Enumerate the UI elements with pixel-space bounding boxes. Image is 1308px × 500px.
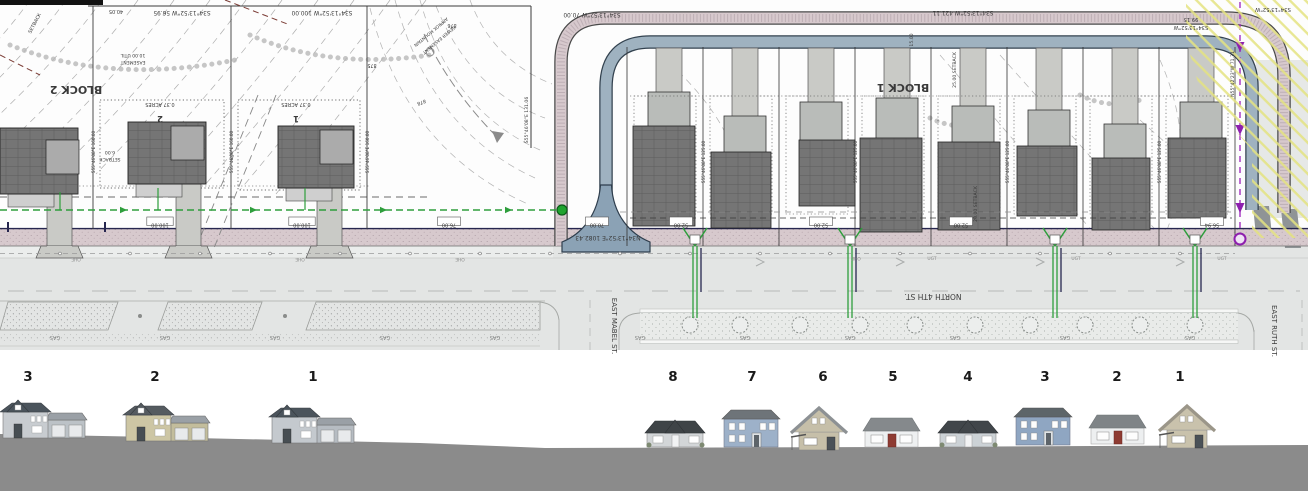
house-elevation (269, 405, 356, 443)
house-part (301, 431, 311, 438)
patio (8, 194, 54, 207)
house-part (166, 419, 170, 425)
lot-number: 4 (963, 369, 972, 385)
house-rooms (711, 152, 771, 228)
service-box (1050, 235, 1060, 244)
dim-label: 76.00 (442, 222, 456, 228)
gas-label: GAS (380, 334, 390, 340)
garage-footprint (1028, 110, 1070, 150)
pole-marker (339, 252, 342, 255)
driveway-crossing (317, 246, 342, 252)
dim-label: 100.00 (293, 222, 311, 228)
plan-label: 2 (157, 113, 163, 123)
garage-footprint (800, 102, 842, 144)
house-part (739, 423, 745, 430)
house-part (15, 405, 21, 410)
plan-label: EAST RUTH ST. (1270, 305, 1278, 357)
house-part (14, 424, 22, 438)
plan-label: S55°46'08"E 160.00 (365, 130, 370, 173)
house-part (982, 436, 992, 443)
house-part (126, 415, 171, 441)
pole-marker (199, 252, 202, 255)
tree-symbol (732, 317, 748, 333)
house-part (300, 421, 304, 427)
sewer-manhole-green (557, 205, 567, 215)
house-part (827, 437, 835, 450)
house-part (43, 416, 47, 422)
garage-footprint (648, 92, 690, 130)
house-rooms (799, 140, 855, 206)
house-rooms (1168, 138, 1226, 218)
plan-label: S34°13'52"W 70.00 (563, 11, 620, 17)
dim-label: 52.00 (674, 222, 688, 228)
gas-label: GAS (740, 334, 750, 340)
gas-label: GAS (1185, 334, 1195, 340)
plan-label: S34°13'52"W (1254, 6, 1291, 12)
tree-symbol (1077, 317, 1093, 333)
house-part (272, 417, 317, 443)
garage-footprint (46, 140, 79, 174)
house-part (314, 418, 356, 425)
house-part (37, 416, 41, 422)
plan-label: OHE (851, 255, 861, 261)
driveway-crossing (176, 246, 201, 252)
dim-label: 52.00 (814, 222, 828, 228)
house-part (769, 423, 775, 430)
house-part (32, 426, 42, 433)
lot-number: 7 (747, 369, 756, 385)
house-part (1195, 435, 1203, 448)
house-part (653, 436, 663, 443)
house-elevation (863, 418, 920, 447)
house-part (965, 435, 972, 447)
house-part (689, 436, 699, 443)
lot-number: 3 (23, 369, 32, 385)
house-part (312, 421, 316, 427)
house-part (154, 419, 158, 425)
dim-label: 56.94 (1205, 222, 1219, 228)
tree-symbol (1132, 317, 1148, 333)
plan-label: S55°46'08"E 125.00 (1157, 140, 1162, 183)
house-part (1031, 433, 1037, 440)
service-box (845, 235, 855, 244)
pole-marker (59, 252, 62, 255)
plan-label: S55°46'08"E 160.00 (91, 130, 96, 173)
garage-footprint (876, 98, 918, 142)
plan-label: S55°46'08"E 160.00 (229, 130, 234, 173)
lot-numbers: 32187654321 (23, 369, 1184, 385)
house-part (729, 435, 735, 442)
house-part (863, 418, 920, 431)
house-part (306, 421, 310, 427)
driveway (732, 48, 758, 118)
gas-label: GAS (50, 334, 60, 340)
house-elevation (722, 410, 780, 447)
pole-marker (1109, 252, 1112, 255)
house-part (168, 416, 210, 423)
street-elevations: 32187654321 (0, 360, 1308, 500)
driveway (656, 48, 682, 94)
house-elevation (1089, 415, 1146, 444)
pole-marker (899, 252, 902, 255)
driveway (1112, 48, 1138, 126)
lot-number: 2 (1112, 369, 1121, 385)
house-part (1188, 416, 1193, 422)
house-part (900, 435, 912, 443)
house-part (672, 435, 679, 447)
house-rooms (1092, 158, 1150, 230)
lot-number: 6 (818, 369, 827, 385)
plan-label: BLOCK 1 (877, 81, 929, 94)
plan-label: OHE (295, 256, 305, 262)
shrub (700, 443, 705, 448)
house-part (888, 434, 896, 447)
lot-number: 3 (1040, 369, 1049, 385)
house-part (31, 416, 35, 422)
house-part (793, 409, 845, 432)
apron-marker (283, 314, 287, 318)
house-part (52, 425, 65, 437)
garage-footprint (1104, 124, 1146, 162)
plan-label: 875 (367, 62, 376, 68)
house-part (138, 408, 144, 413)
house-part (160, 419, 164, 425)
street-north-4th (0, 246, 1308, 360)
tree-symbol (682, 317, 698, 333)
driveway (1036, 48, 1062, 112)
plan-label: N34°13'52"E 1082.43 (575, 234, 640, 241)
lot-number: 5 (888, 369, 897, 385)
plan-label: S55°46'08"E 125.00 (701, 140, 706, 183)
pole-marker (829, 252, 832, 255)
house-part (871, 435, 883, 443)
house-part (739, 435, 745, 442)
house-part (284, 410, 290, 415)
pole-marker (409, 252, 412, 255)
plan-label: 876 (447, 22, 456, 28)
driveway (808, 48, 834, 104)
house-part (1126, 432, 1138, 440)
garage-footprint (171, 126, 204, 160)
tree-symbol (792, 317, 808, 333)
garage-footprint (320, 130, 353, 164)
house-part (754, 435, 759, 447)
tree-symbol (1022, 317, 1038, 333)
house-part (1097, 432, 1109, 440)
plan-label: N55°42'23"W 71.31 (1230, 51, 1236, 97)
pole-marker (269, 252, 272, 255)
gas-label: GAS (160, 334, 170, 340)
house-elevation (791, 408, 847, 450)
tree-symbol (852, 317, 868, 333)
house-part (1052, 421, 1058, 428)
pole-marker (129, 252, 132, 255)
driveway-crossing (47, 246, 72, 252)
service-box (1190, 235, 1200, 244)
plan-label: S55°46'08"E 131.06 (524, 97, 530, 144)
house-elevation (1159, 406, 1215, 448)
apron-marker (138, 314, 142, 318)
house-part (321, 430, 334, 442)
titleblock-edge (0, 0, 103, 5)
plan-label: OHE (71, 256, 81, 262)
tree-symbol (907, 317, 923, 333)
house-part (1061, 421, 1067, 428)
house-part (45, 413, 87, 420)
pole-marker (619, 252, 622, 255)
plan-label: EAST MABEL ST. (610, 298, 618, 354)
gas-label: GAS (845, 334, 855, 340)
house-elevation (123, 403, 210, 441)
house-elevation (645, 420, 705, 448)
dim-label: 100.00 (151, 222, 169, 228)
plan-view: 76.00100.00100.0070.0052.0052.0052.0056.… (0, 0, 1308, 360)
plan-label: 6.00 (105, 149, 115, 155)
pole-marker (689, 252, 692, 255)
plan-label: 25.00 SETBACK (952, 51, 958, 88)
shrub (993, 443, 998, 448)
plan-label: EASEMENT (120, 59, 145, 65)
house-part (155, 429, 165, 436)
plan-label: 99.15 (1184, 16, 1199, 22)
plan-label: S34°13'52"W 421.11 (932, 9, 993, 15)
house-part (1180, 416, 1185, 422)
plan-label: UGT (1071, 256, 1080, 262)
pole-marker (1179, 252, 1182, 255)
garage-footprint (952, 106, 994, 146)
gas-label: GAS (490, 334, 500, 340)
plan-label: NORTH 4TH ST. (905, 292, 962, 301)
shrub (647, 443, 652, 448)
plan-label: SETBACK (98, 156, 120, 162)
plan-label: 0.37 ACRES (281, 101, 310, 107)
pole-marker (549, 252, 552, 255)
gas-label: GAS (950, 334, 960, 340)
house-part (1161, 407, 1213, 430)
house-part (1031, 421, 1037, 428)
house-part (812, 418, 817, 424)
house-part (3, 412, 48, 438)
house-part (804, 438, 817, 445)
gas-label: GAS (1060, 334, 1070, 340)
house-elevation (938, 420, 998, 448)
plan-label: 10.00 UTIL (120, 52, 145, 58)
plan-label: 20.00 SETBACK (973, 185, 979, 222)
tree-symbol (967, 317, 983, 333)
patio (286, 188, 332, 201)
house-elevation (0, 400, 87, 438)
house-elevation (1014, 408, 1072, 445)
plan-label: S55°46'08"E 125.00 (1005, 140, 1010, 183)
dim-label: 52.00 (954, 222, 968, 228)
house-rooms (633, 126, 695, 226)
garage-footprint (724, 116, 766, 156)
lot-number: 2 (150, 369, 159, 385)
plan-label: UGT (927, 256, 936, 262)
gas-label: GAS (635, 334, 645, 340)
pole-marker (479, 252, 482, 255)
house-part (1114, 431, 1122, 444)
house-part (175, 428, 188, 440)
house-part (1021, 433, 1027, 440)
plan-label: S34°13'52"W 56.95 (153, 9, 210, 15)
house-part (1089, 415, 1146, 428)
plan-label: UGT (1217, 256, 1226, 262)
house-part (1172, 436, 1185, 443)
house-part (1014, 408, 1072, 417)
pole-marker (759, 252, 762, 255)
plan-label: OHE (455, 256, 465, 262)
house-part (338, 430, 351, 442)
plan-label: 1 (293, 113, 299, 123)
dim-label: 70.00 (590, 222, 604, 228)
plan-label: S34°13'52"W (1174, 24, 1209, 30)
driveway (960, 48, 986, 108)
plan-label: BLOCK 2 (50, 83, 102, 96)
plan-label: 15.00 (909, 33, 915, 46)
house-part (69, 425, 82, 437)
service-box (690, 235, 700, 244)
house-rooms (1017, 146, 1077, 216)
house-part (192, 428, 205, 440)
shrub (940, 443, 945, 448)
house-part (729, 423, 735, 430)
patio (136, 184, 182, 197)
lot-number: 1 (1175, 369, 1184, 385)
pole-marker (969, 252, 972, 255)
lot-number: 8 (668, 369, 677, 385)
plan-label: S55°46'08"E 125.00 (853, 140, 858, 183)
lot-number: 1 (308, 369, 317, 385)
house-part (283, 429, 291, 443)
gas-label: GAS (270, 334, 280, 340)
house-part (722, 410, 780, 419)
house-part (1021, 421, 1027, 428)
house-part (820, 418, 825, 424)
pole-marker (1039, 252, 1042, 255)
tree-symbol (1187, 317, 1203, 333)
plan-label: 0.37 ACRES (145, 101, 174, 107)
plan-label: 40.05 (109, 8, 123, 14)
plan-label: S34°13'52"W 100.00 (291, 9, 352, 15)
sewer-manhole-purple (1235, 234, 1246, 245)
house-part (137, 427, 145, 441)
house-part (760, 423, 766, 430)
house-part (946, 436, 956, 443)
site-plan-sheet: 76.00100.00100.0070.0052.0052.0052.0056.… (0, 0, 1308, 500)
house-part (1046, 433, 1051, 445)
